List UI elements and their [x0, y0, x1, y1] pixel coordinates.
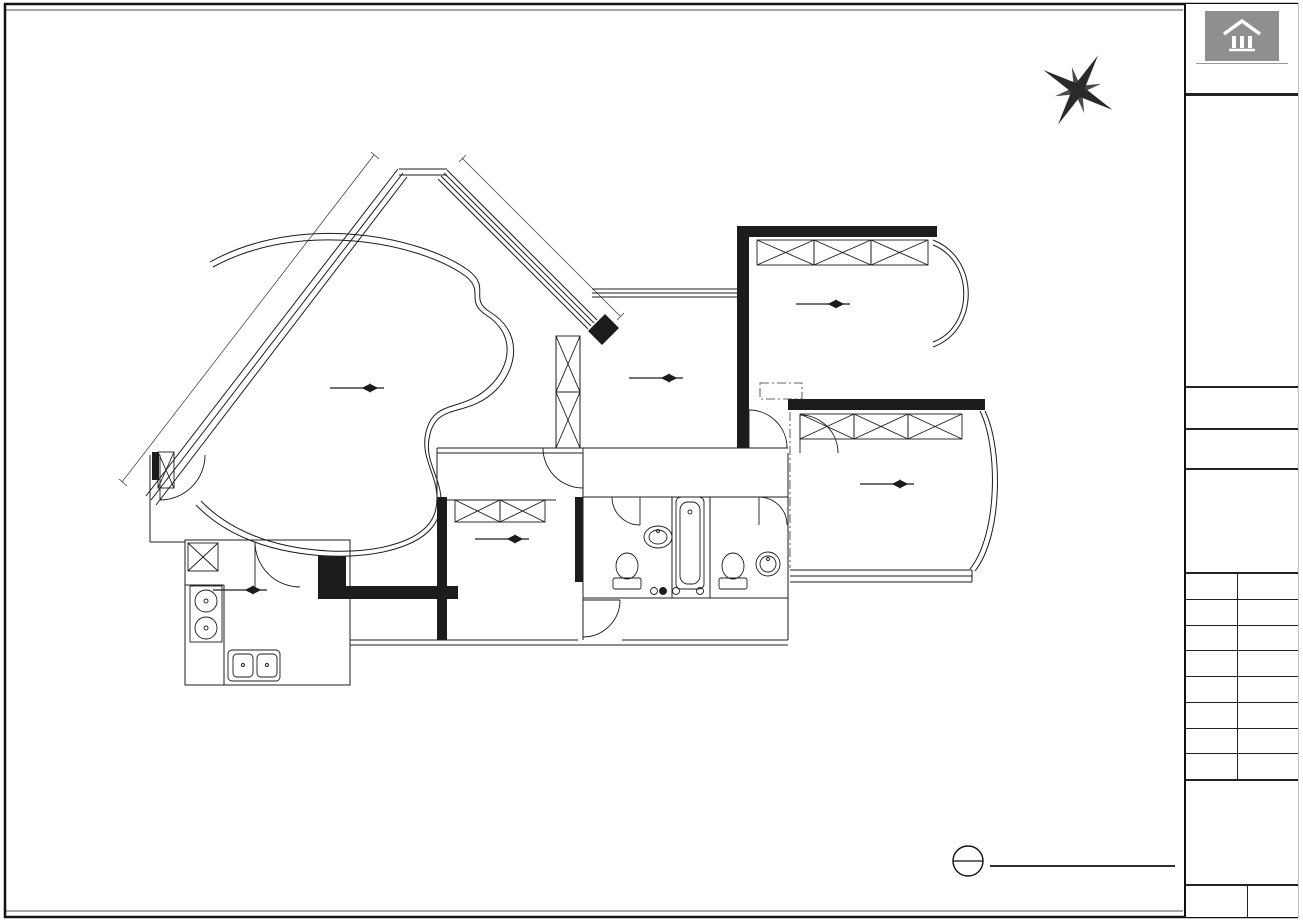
brand-name-en — [1196, 63, 1288, 64]
stove — [190, 586, 222, 642]
firm-label — [1186, 470, 1298, 473]
reference-lines — [760, 383, 802, 568]
notes-section — [1186, 781, 1298, 884]
permit-section — [1186, 430, 1298, 470]
walls-lines — [146, 169, 997, 685]
project-name-section — [1186, 122, 1298, 388]
logo-mark — [1205, 11, 1279, 61]
drawing-by-value — [1238, 677, 1298, 702]
row-drawing-by — [1186, 677, 1298, 703]
level-markers — [213, 301, 914, 594]
plan-callout — [953, 846, 1175, 876]
diagonal-dims — [119, 152, 624, 486]
row-drawing-no — [1186, 729, 1298, 755]
project-label-section — [1186, 96, 1298, 122]
row-scale — [1186, 703, 1298, 729]
row-project-lead — [1186, 600, 1298, 626]
design-firm-section — [1186, 470, 1298, 574]
row-design-by — [1186, 651, 1298, 677]
sheet-border — [5, 4, 1297, 917]
row-customer-signature — [1186, 574, 1298, 600]
house-icon — [1220, 18, 1264, 54]
toilet-right — [722, 553, 744, 579]
title-block — [1184, 4, 1298, 917]
drawing-title-label — [1186, 388, 1298, 391]
door-swings — [160, 410, 838, 637]
floor-plan-canvas — [0, 0, 1303, 921]
customer-signature-value — [1238, 574, 1298, 599]
walls-solid — [152, 226, 985, 640]
date-row — [1186, 884, 1298, 917]
row-approved-by — [1186, 626, 1298, 652]
project-label — [1186, 96, 1298, 99]
cost-engineer-value — [1238, 754, 1298, 779]
row-cost-engineer — [1186, 754, 1298, 779]
design-by-value — [1238, 651, 1298, 676]
fixtures — [190, 497, 780, 681]
drawing-sheet — [0, 0, 1303, 921]
serial-value — [1250, 886, 1298, 917]
drawing-title-section — [1186, 388, 1298, 430]
project-lead-value — [1238, 600, 1298, 625]
logo-section — [1186, 4, 1298, 96]
toilet-left — [616, 553, 638, 579]
scale-value — [1238, 703, 1298, 728]
kitchen-sink — [228, 650, 280, 681]
drawing-no-value — [1238, 729, 1298, 754]
compass-rose — [1023, 35, 1132, 144]
signature-rows — [1186, 574, 1298, 781]
approved-by-value — [1238, 626, 1298, 651]
